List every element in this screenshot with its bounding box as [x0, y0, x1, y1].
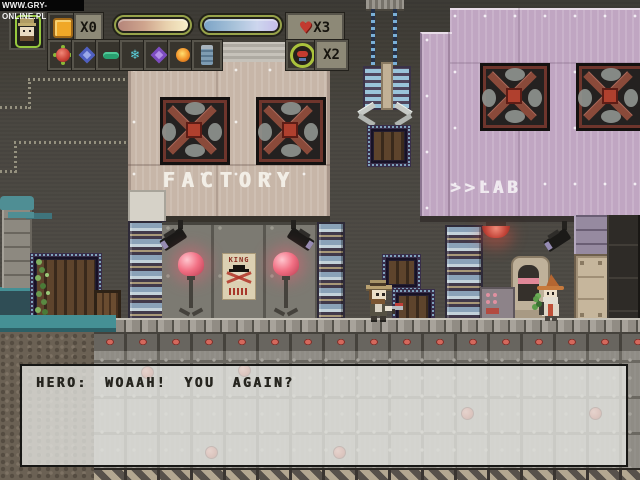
pink-lamp [176, 252, 206, 318]
lamp-pole [284, 280, 288, 308]
hero-character [362, 277, 404, 322]
wall-seam [14, 141, 128, 144]
bar-frame [114, 15, 192, 35]
hero-hat-band [370, 283, 386, 286]
fan-hub [506, 88, 522, 104]
portrait-hat-brim [18, 23, 36, 26]
door-screws [580, 261, 584, 265]
hazard-stripe-row [94, 468, 640, 480]
fan-hub [186, 122, 202, 138]
camera-ridge [298, 228, 310, 238]
moss-strip [0, 315, 116, 332]
wall-seam [28, 78, 128, 81]
camera-ridge [547, 229, 559, 239]
factory-fan-vent [256, 97, 326, 165]
vine [36, 259, 42, 265]
hero-pistol-tip [395, 303, 403, 306]
panel-label [486, 308, 499, 314]
lamp-dome [482, 226, 510, 238]
red-ceiling-lamp [482, 222, 510, 242]
lamp-foot [274, 308, 286, 317]
lamp-pole [189, 280, 193, 308]
camera-ridge [163, 228, 175, 238]
item-slot [192, 40, 222, 70]
alchemist-cloak [539, 302, 544, 315]
hero-pistol-grip [392, 309, 395, 314]
orange-cube-icon [53, 18, 73, 38]
canister-icon [201, 45, 213, 65]
fan-blade [258, 123, 272, 141]
camera-body [287, 227, 315, 251]
factory-fan-vent [160, 97, 230, 165]
fan-hub [282, 122, 298, 138]
medal-glint [299, 58, 306, 61]
claw-arm-left [359, 103, 381, 127]
medal-core [297, 51, 308, 57]
support-column [445, 225, 483, 324]
alchemist-sash [548, 304, 553, 316]
fire-orb-icon [176, 48, 190, 62]
poster-marks [229, 288, 249, 295]
king-poster: KING [222, 253, 256, 300]
ammo-counter: X0 [74, 13, 103, 43]
hud: X0 ♥ X3 ❄ [0, 0, 640, 70]
lamp-foot [287, 308, 299, 317]
lamp-head [273, 252, 299, 276]
alchemist-eye [552, 292, 554, 295]
fan-blade [528, 89, 542, 107]
crane-crate [367, 125, 411, 167]
snowflake-icon: ❄ [131, 48, 139, 62]
fan-hub [602, 88, 618, 104]
hero-eye [376, 293, 379, 296]
security-camera [542, 221, 572, 255]
game-viewport[interactable]: FACTORY >>LAB [0, 0, 640, 480]
fan-blade [624, 89, 638, 107]
door-seam [578, 276, 604, 278]
red-flower-icon [56, 48, 70, 62]
blue-gem-icon [79, 47, 96, 64]
security-camera [286, 220, 316, 254]
purple-column [574, 215, 610, 257]
camera-body [543, 228, 571, 252]
health-bar-fill [118, 19, 188, 31]
hero-leg [371, 316, 377, 322]
camera-lens [305, 240, 314, 249]
wall-seam [14, 143, 17, 173]
claw-arm-right [389, 103, 411, 127]
stone-pillar [2, 199, 32, 288]
wall-seam [28, 80, 31, 109]
hero-shirt [375, 304, 382, 312]
lives-counter: ♥ X3 [286, 13, 344, 43]
poster-title: KING [223, 256, 255, 264]
crate-studs [368, 126, 410, 166]
hazard-separators [94, 470, 640, 480]
alchemist-leg [545, 316, 550, 321]
lives-count-label: X3 [313, 20, 330, 36]
lamp-head [178, 252, 204, 276]
door-seam [578, 298, 604, 300]
alchemist-character [536, 274, 566, 322]
health-bar [112, 13, 194, 37]
fan-blade [208, 123, 222, 141]
dialogue-text: HERO: WOAAH! YOU AGAIN? [36, 376, 616, 391]
green-capsule-icon [103, 52, 119, 59]
pillar-moss-cap [0, 196, 34, 210]
security-camera [158, 220, 188, 254]
gem-shine [83, 51, 91, 59]
fan-blade [304, 123, 318, 141]
fan-blade [482, 89, 496, 107]
camera-body [159, 227, 187, 251]
purple-gem-icon [151, 47, 168, 64]
dialogue-box[interactable]: HERO: WOAAH! YOU AGAIN? [20, 364, 628, 467]
medal-icon [290, 43, 315, 68]
heart-icon: ♥ [300, 19, 311, 38]
fan-blade [578, 89, 592, 107]
shield-counter: X2 [315, 40, 348, 70]
lab-sign: >>LAB [450, 178, 590, 198]
factory-sign: FACTORY [128, 168, 330, 192]
portrait-beard [20, 36, 34, 41]
wall-seam [0, 106, 31, 109]
portrait-eyes [23, 30, 25, 32]
gem-shine [155, 51, 163, 59]
energy-bar-fill [204, 19, 278, 31]
fan-blade [162, 123, 176, 141]
floor-light-row [94, 334, 640, 351]
shield-slot [286, 40, 318, 70]
alchemist-herb [533, 296, 539, 302]
alchemist-eye [547, 292, 549, 295]
hero-eye [382, 293, 385, 296]
alchemist-leg [552, 316, 557, 321]
hero-leg [380, 316, 386, 322]
support-column [317, 222, 345, 324]
lab-fan-vent [576, 63, 640, 131]
camera-lens [160, 240, 169, 249]
lamp-foot [192, 308, 204, 317]
pink-lamp [271, 252, 301, 318]
lab-fan-vent [480, 63, 550, 131]
watermark: WWW.GRY-ONLINE.PL [0, 0, 84, 11]
lamp-foot [179, 308, 191, 317]
camera-lens [544, 241, 553, 250]
bar-frame [200, 15, 282, 35]
energy-bar [198, 13, 284, 37]
panel-knobs [486, 293, 490, 297]
